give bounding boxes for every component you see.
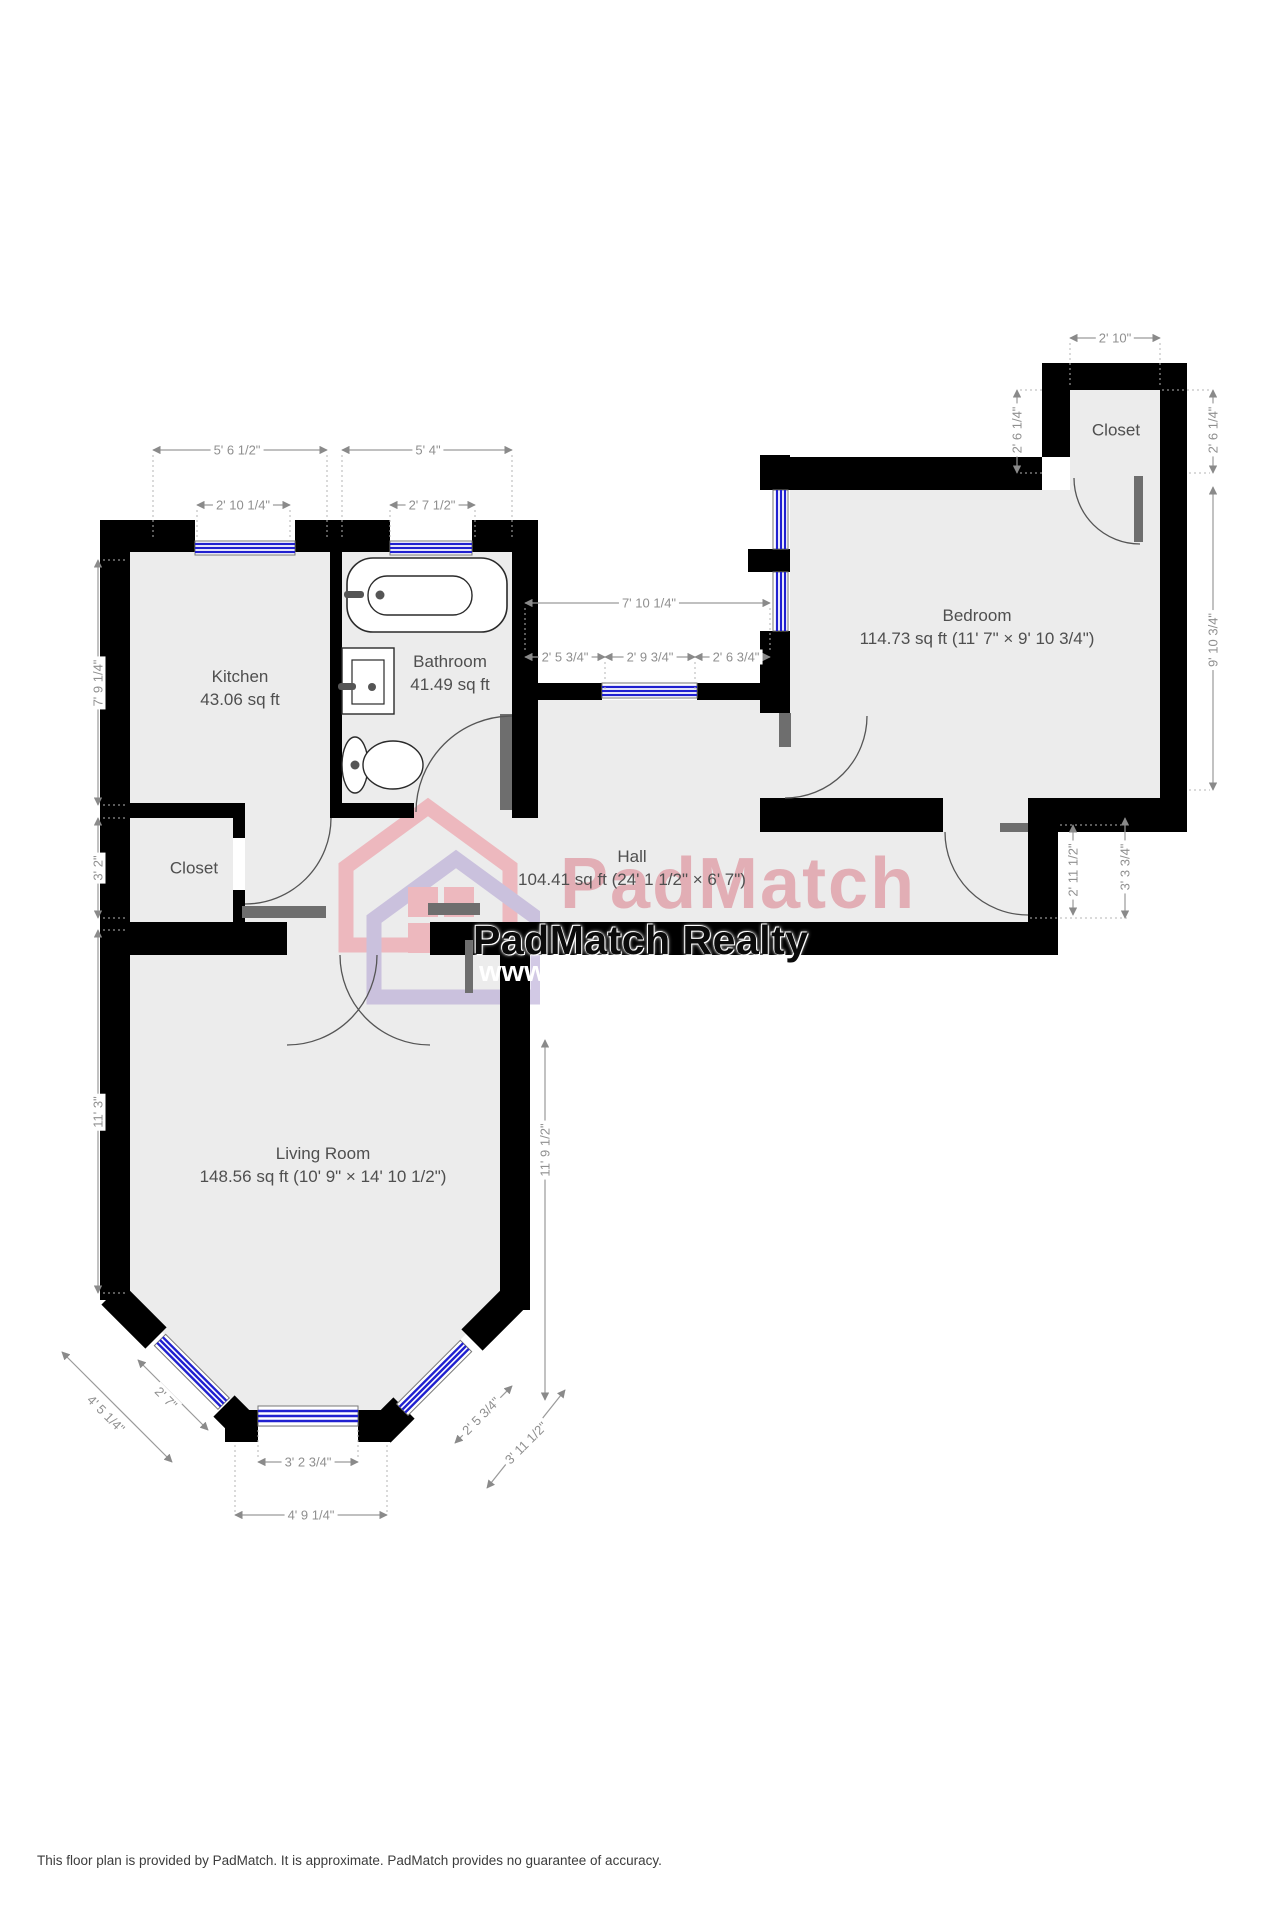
room-area: 104.41 sq ft (24' 1 1/2" × 6' 7") bbox=[518, 869, 746, 892]
disclaimer-text: This floor plan is provided by PadMatch.… bbox=[37, 1853, 662, 1868]
dimension-label: 7' 9 1/4" bbox=[91, 657, 106, 710]
watermark-url-text: www. bbox=[479, 956, 554, 989]
room-name: Bedroom bbox=[860, 605, 1095, 628]
dimension-label: 5' 6 1/2" bbox=[211, 443, 264, 458]
living-room-label: Living Room 148.56 sq ft (10' 9" × 14' 1… bbox=[200, 1143, 447, 1189]
room-name: Living Room bbox=[200, 1143, 447, 1166]
room-area: 43.06 sq ft bbox=[200, 689, 279, 712]
dimension-label: 2' 6 3/4" bbox=[710, 650, 763, 665]
room-name: Bathroom bbox=[410, 651, 489, 674]
closet-left-label: Closet bbox=[170, 858, 218, 881]
hall-label: Hall 104.41 sq ft (24' 1 1/2" × 6' 7") bbox=[518, 846, 746, 892]
closet-tr-label: Closet bbox=[1092, 420, 1140, 443]
dimension-label: 2' 7 1/2" bbox=[406, 498, 459, 513]
dimension-label: 2' 6 1/4" bbox=[1010, 404, 1025, 457]
dimension-label: 2' 11 1/2" bbox=[1066, 840, 1081, 899]
room-name: Hall bbox=[518, 846, 746, 869]
room-name: Closet bbox=[1092, 420, 1140, 443]
dimension-label: 2' 6 1/4" bbox=[1206, 404, 1221, 457]
kitchen-label: Kitchen 43.06 sq ft bbox=[200, 666, 279, 712]
dimension-label: 3' 2" bbox=[91, 852, 106, 883]
dimension-label: 2' 9 3/4" bbox=[624, 650, 677, 665]
room-area: 148.56 sq ft (10' 9" × 14' 10 1/2") bbox=[200, 1166, 447, 1189]
dimension-label: 4' 9 1/4" bbox=[285, 1508, 338, 1523]
room-name: Kitchen bbox=[200, 666, 279, 689]
room-area: 114.73 sq ft (11' 7" × 9' 10 3/4") bbox=[860, 628, 1095, 651]
dimension-label: 7' 10 1/4" bbox=[619, 596, 679, 611]
dimension-label: 2' 5 3/4" bbox=[539, 650, 592, 665]
padmatch-logo-icon bbox=[330, 795, 540, 1025]
dimension-label: 3' 2 3/4" bbox=[282, 1455, 335, 1470]
dimension-label: 2' 10 1/4" bbox=[213, 498, 273, 513]
dimension-label: 11' 3" bbox=[91, 1093, 106, 1130]
dimension-label: 5' 4" bbox=[412, 443, 443, 458]
dimension-label: 11' 9 1/2" bbox=[538, 1120, 553, 1179]
room-name: Closet bbox=[170, 858, 218, 881]
dimension-label: 2' 10" bbox=[1096, 331, 1134, 346]
dimension-label: 9' 10 3/4" bbox=[1206, 610, 1221, 670]
floor-plan: PadMatch bbox=[0, 0, 1280, 1920]
bathroom-label: Bathroom 41.49 sq ft bbox=[410, 651, 489, 697]
dimension-label: 3' 3 3/4" bbox=[1118, 841, 1133, 894]
room-area: 41.49 sq ft bbox=[410, 674, 489, 697]
bedroom-label: Bedroom 114.73 sq ft (11' 7" × 9' 10 3/4… bbox=[860, 605, 1095, 651]
